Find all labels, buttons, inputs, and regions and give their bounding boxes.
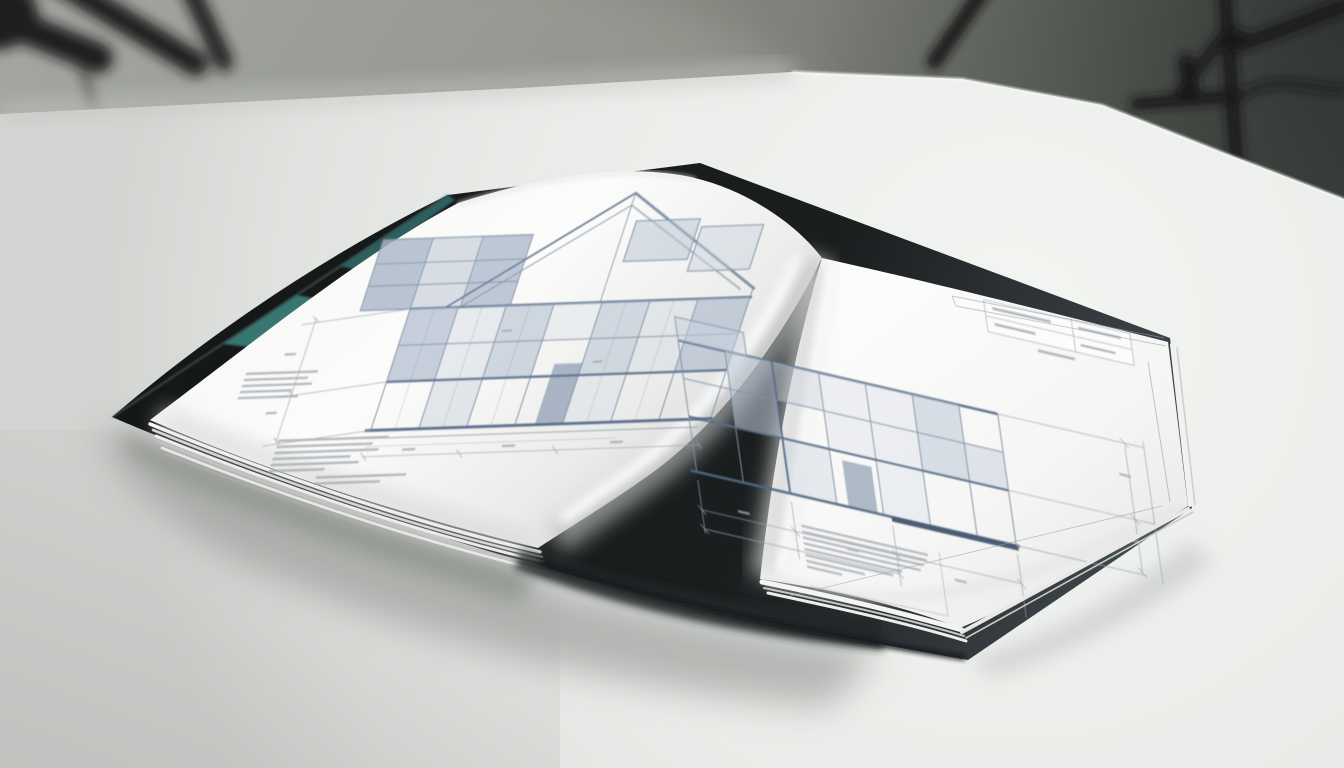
elevation-upper-panels	[360, 235, 533, 311]
tripod-right-clamp	[1217, 28, 1249, 52]
studio-photo-scene	[0, 0, 1344, 768]
shaded-panel	[623, 219, 700, 262]
tripod-right-foot-stub	[1186, 62, 1193, 98]
photo-canvas	[0, 0, 1344, 768]
